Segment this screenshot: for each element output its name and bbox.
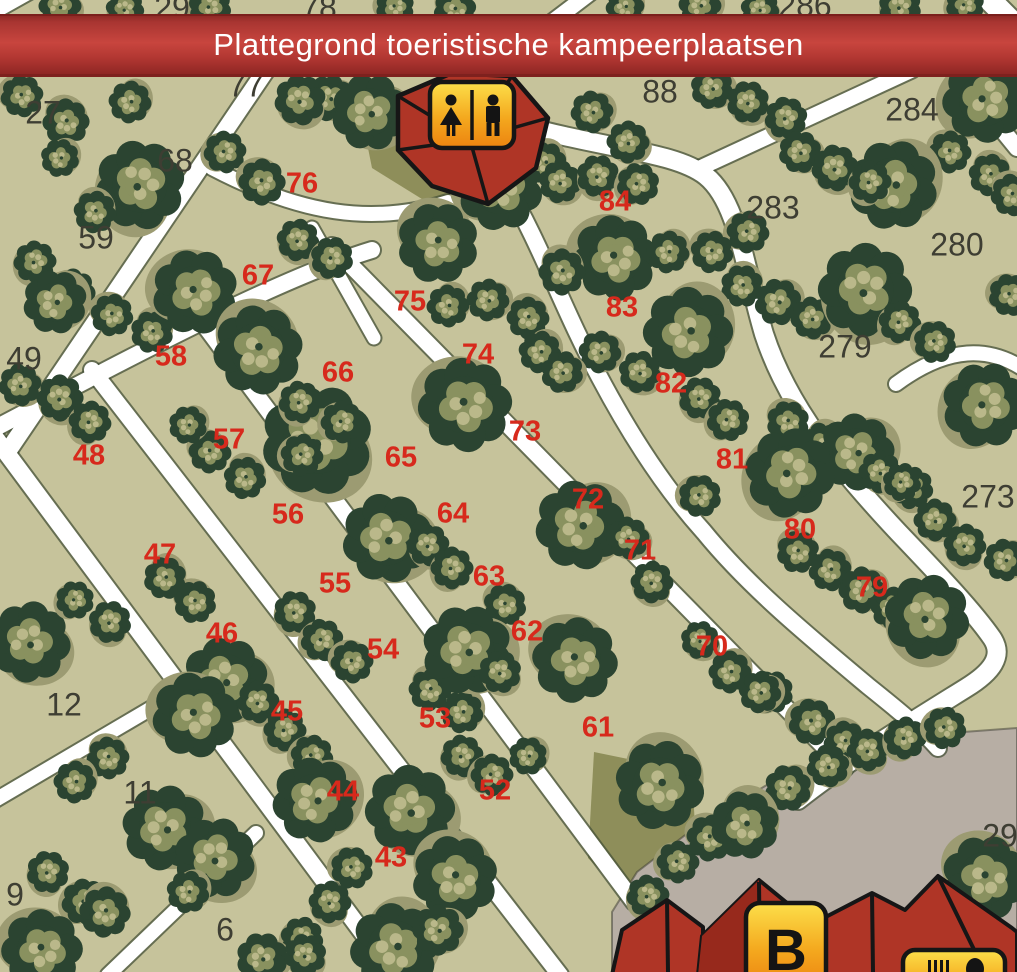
toilet-sign (430, 82, 514, 148)
campground-map: B 43444546474852535455565758616263646566… (0, 0, 1017, 972)
b-sign-label: B (765, 918, 807, 972)
map-canvas: B (0, 0, 1017, 972)
map-title-banner: Plattegrond toeristische kampeerplaatsen (0, 14, 1017, 77)
b-sign: B (746, 903, 826, 972)
map-title: Plattegrond toeristische kampeerplaatsen (213, 27, 803, 63)
restaurant-sign (903, 950, 1005, 972)
